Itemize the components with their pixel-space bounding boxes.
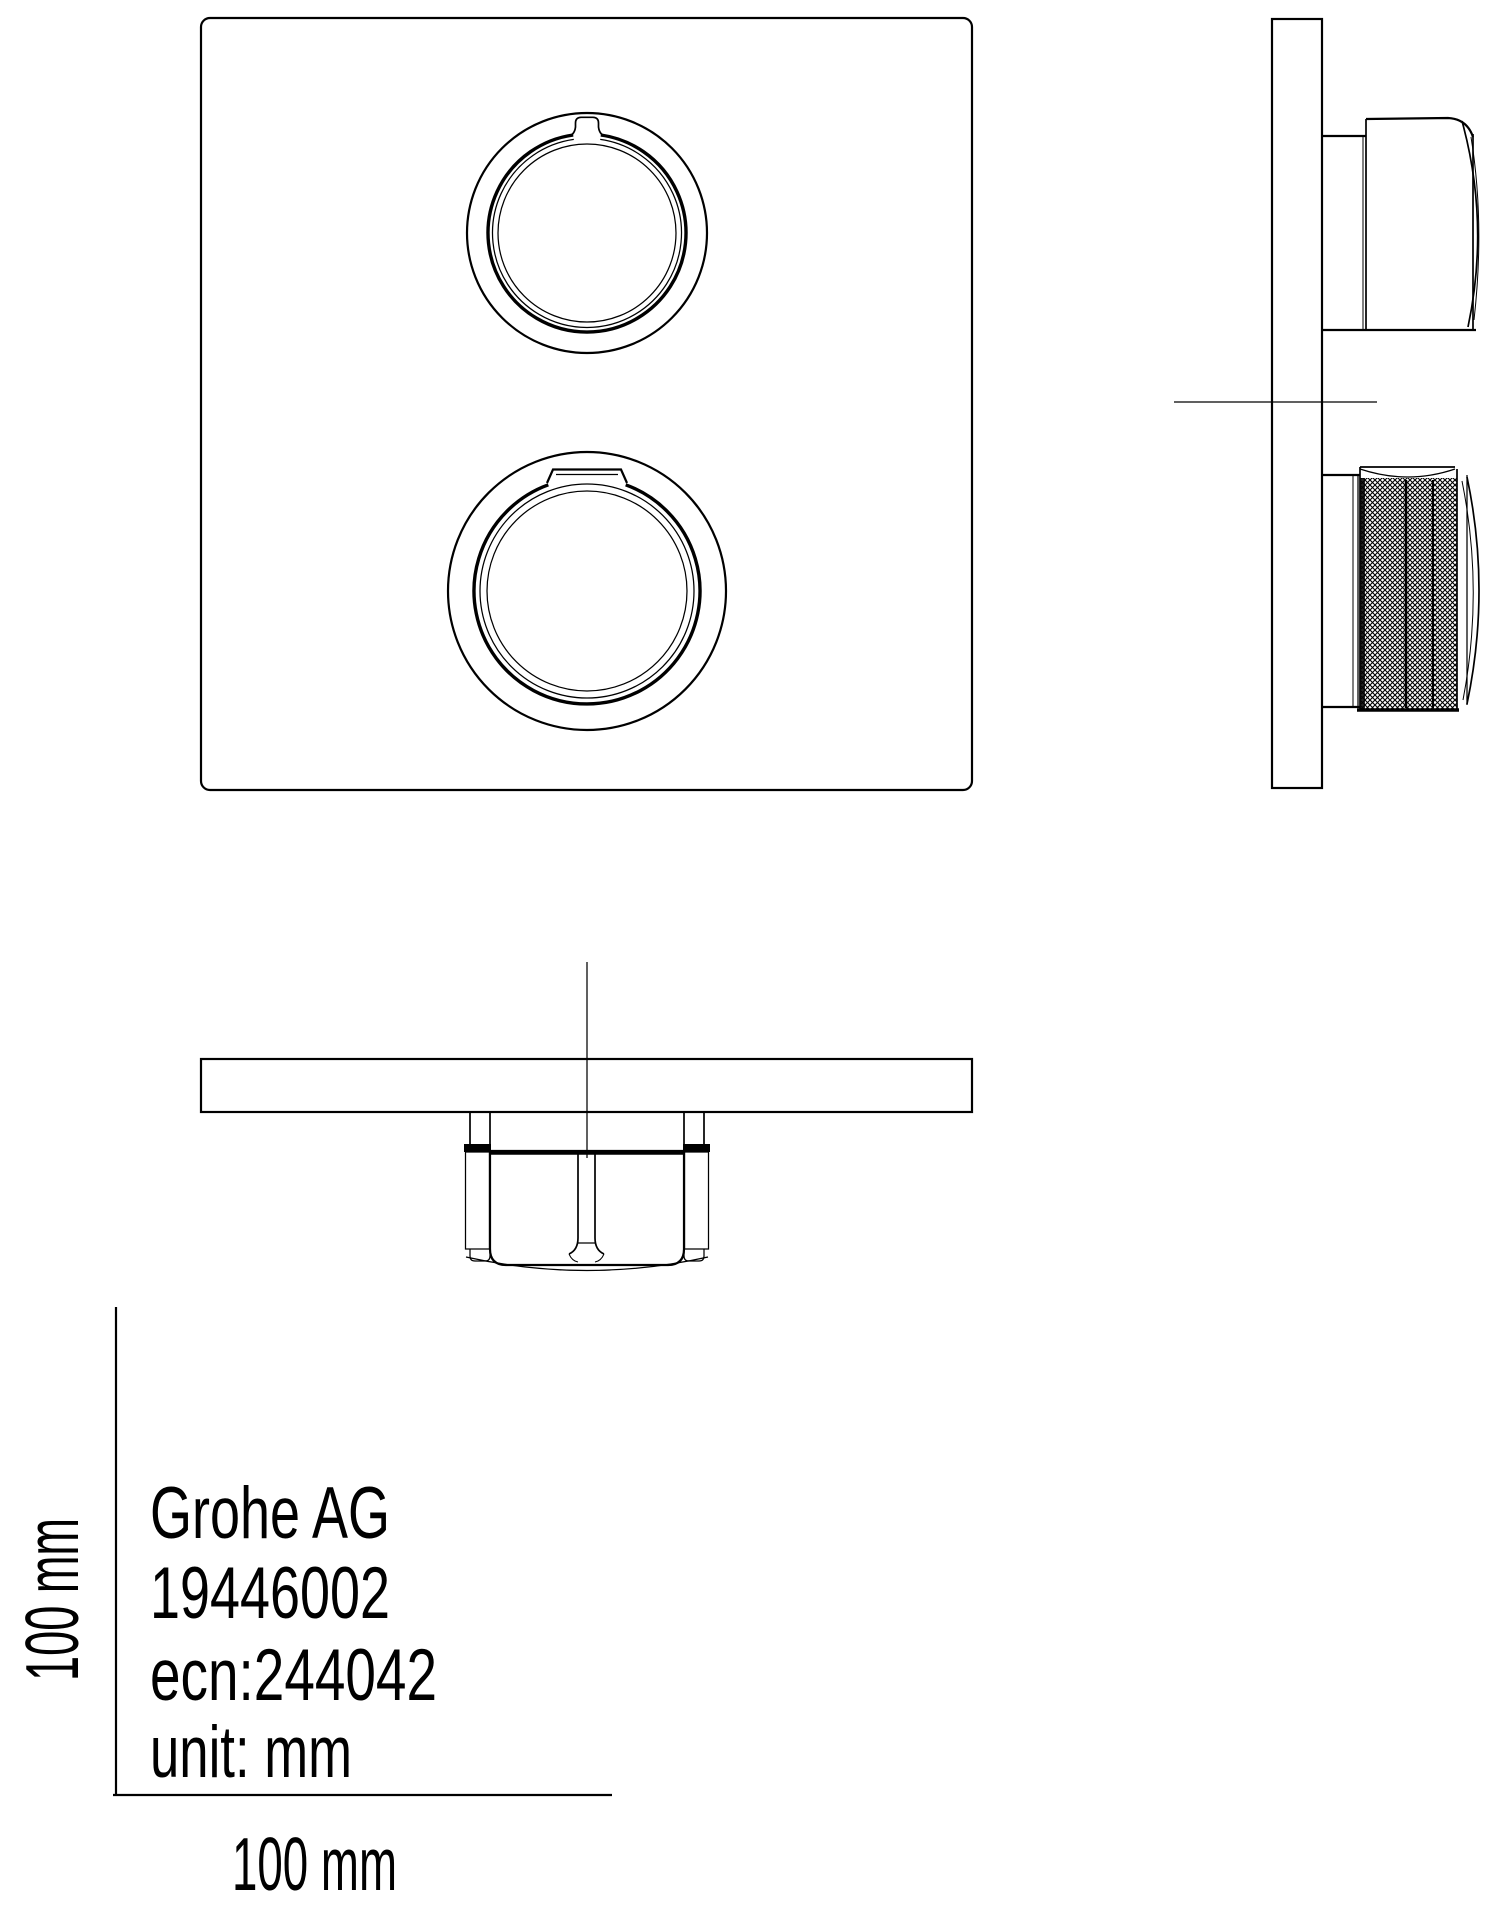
lower-knob-outer-ring — [448, 452, 726, 730]
upper-knob-inner-ring — [498, 144, 676, 322]
unit-text: unit: mm — [150, 1712, 352, 1793]
lower-knob-inner-ring — [487, 491, 687, 691]
height-dimension-label: 100 mm — [10, 1518, 94, 1681]
side-lower-knob — [1322, 467, 1479, 710]
knurled-grip-texture — [1361, 478, 1457, 709]
width-dimension-label: 100 mm — [232, 1822, 397, 1906]
ecn-text: ecn:244042 — [150, 1635, 437, 1716]
technical-drawing-page: 100 mm 100 mm Grohe AG 19446002 ecn:2440… — [0, 0, 1502, 1920]
lower-knob-grip-ring — [474, 485, 700, 704]
knurl-shoulder-left — [464, 1144, 491, 1152]
knurl-strip-right — [685, 1152, 709, 1249]
product-number-text: 19446002 — [150, 1553, 390, 1634]
knurl-shoulder-right — [683, 1144, 710, 1152]
front-view — [201, 18, 972, 790]
lower-knob-index-tab — [547, 470, 627, 484]
front-upper-knob — [467, 113, 707, 353]
manufacturer-text: Grohe AG — [150, 1473, 390, 1554]
upper-knob-outer-ring — [467, 113, 707, 353]
knob-slot — [569, 1154, 578, 1254]
side-plate — [1272, 19, 1322, 788]
side-upper-knob — [1322, 118, 1479, 330]
bottom-view — [201, 962, 972, 1271]
title-block: Grohe AG 19446002 ecn:244042 unit: mm — [150, 1473, 437, 1793]
upper-knob-dome-profile — [1462, 121, 1478, 327]
upper-knob-index-notch — [567, 117, 607, 136]
side-view — [1174, 19, 1479, 788]
knurl-strip-left — [466, 1152, 490, 1249]
knob-body-outline — [490, 1151, 684, 1265]
front-plate — [201, 18, 972, 790]
knurl-top-chamfer — [1360, 469, 1455, 477]
front-lower-knob — [448, 452, 726, 730]
upper-knob-grip-ring — [488, 135, 686, 332]
